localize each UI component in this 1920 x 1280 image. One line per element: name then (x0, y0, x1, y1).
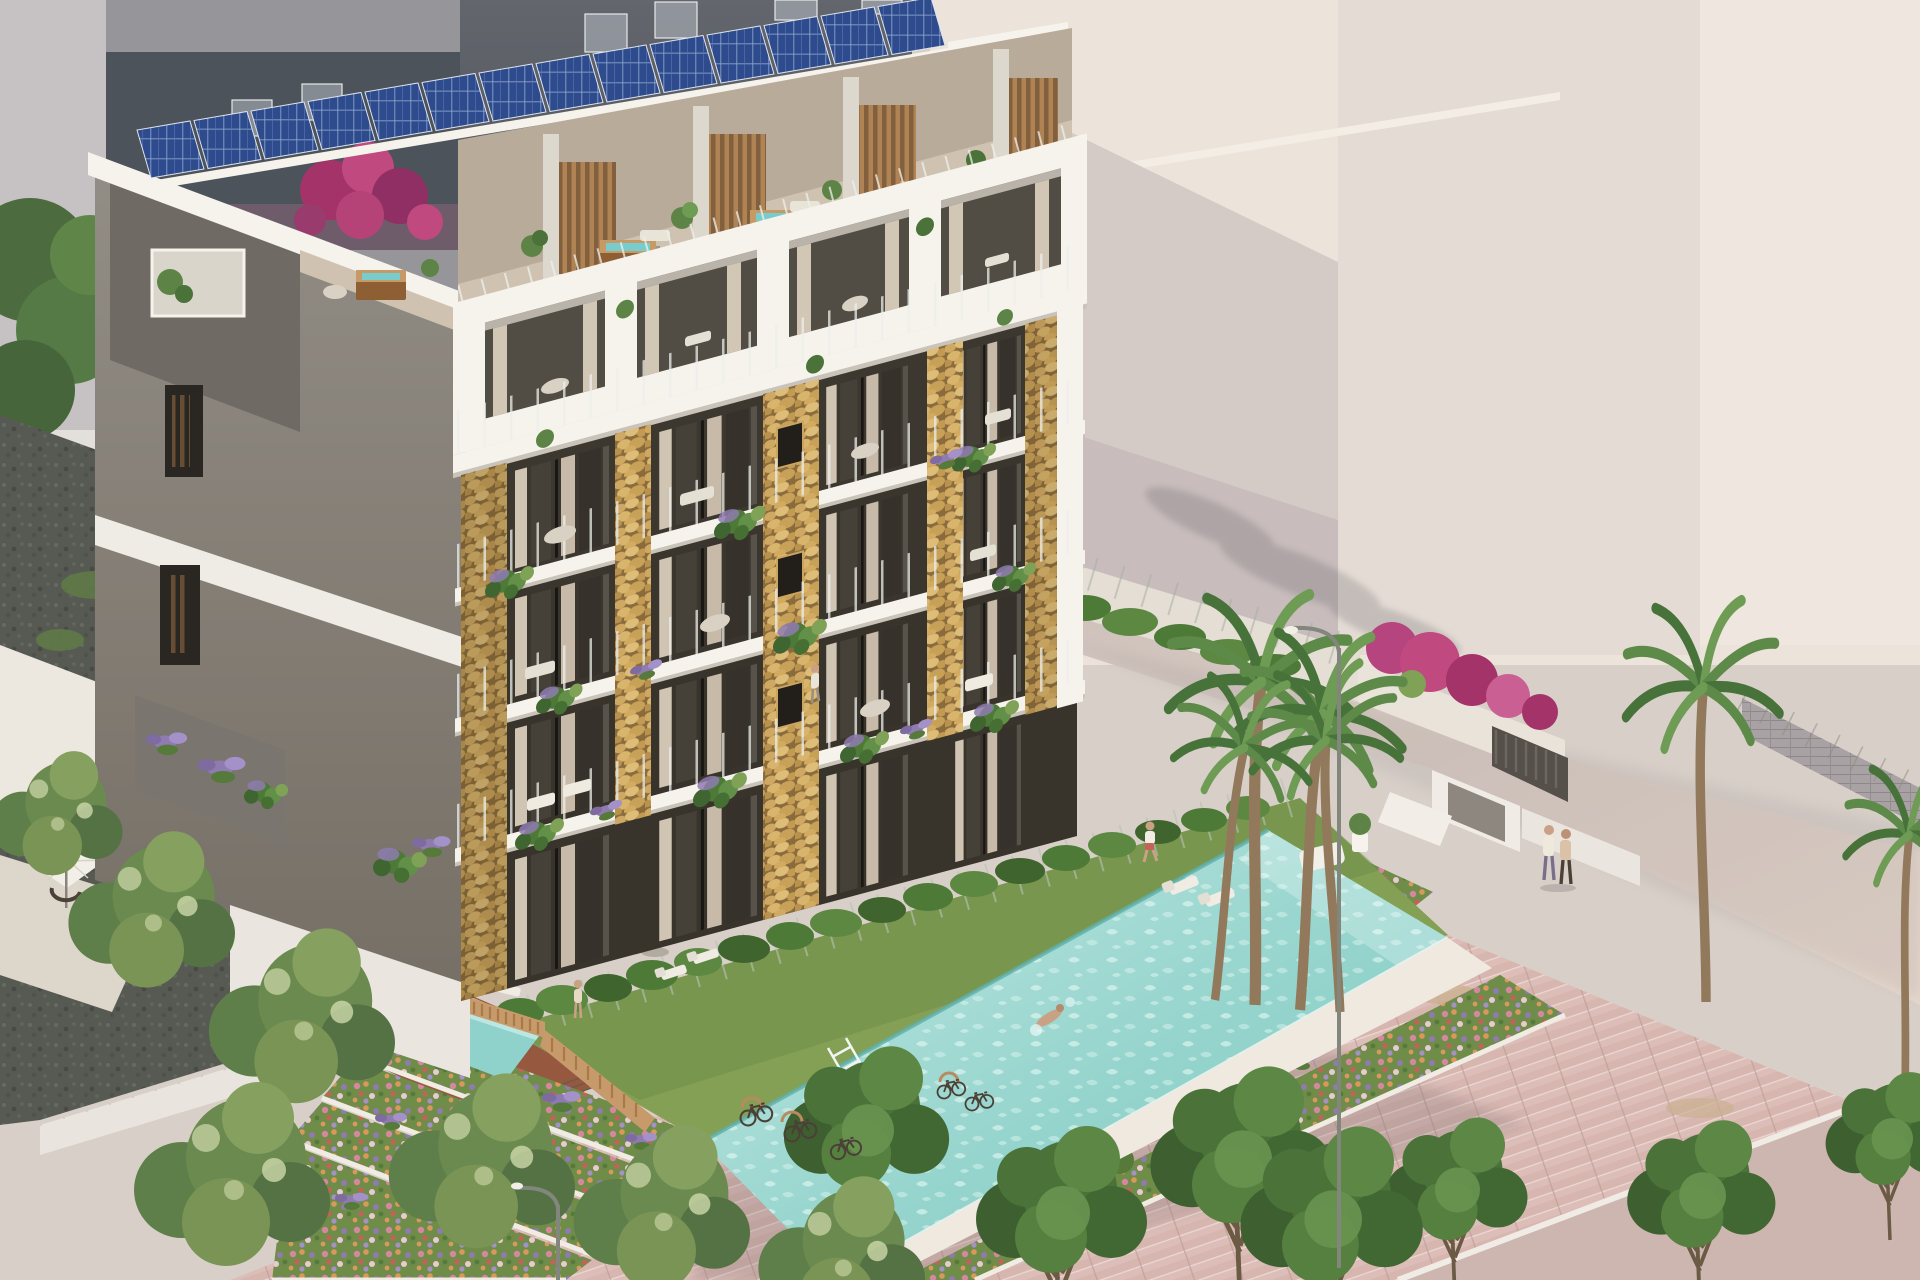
backdrop-building-mid (1338, 0, 1700, 655)
white-end-column (1057, 286, 1083, 708)
architectural-render (0, 0, 1920, 1280)
tree-pit (1666, 1098, 1734, 1118)
backdrop-building-right (1700, 0, 1920, 645)
